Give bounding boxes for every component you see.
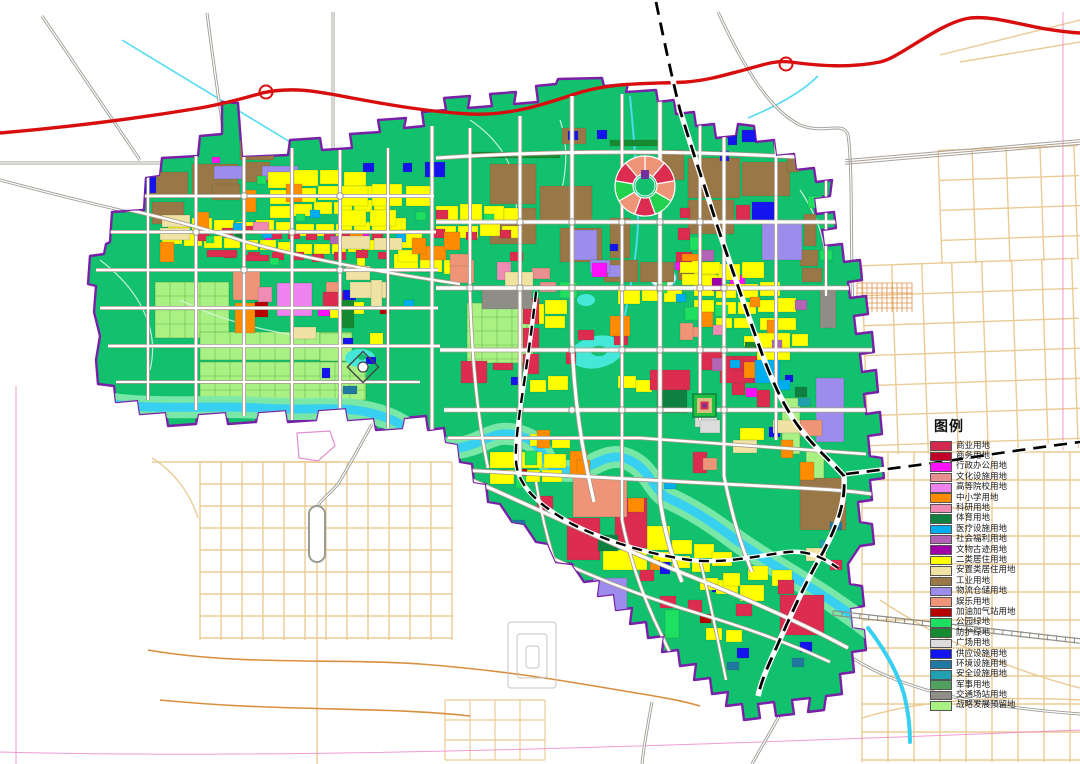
parcel-res	[740, 428, 764, 440]
legend-item-label: 交通场站用地	[956, 691, 1007, 700]
legend-swatch	[930, 556, 952, 566]
parcel-com	[757, 390, 770, 407]
legend-item-label: 科研用地	[956, 504, 990, 513]
parcel-sch	[800, 462, 814, 480]
legend-item: 文化设施用地	[930, 472, 1070, 482]
parcel-med	[676, 294, 686, 302]
legend-item: 供应设施用地	[930, 649, 1070, 659]
parcel-ind	[802, 268, 822, 282]
legend-item-label: 广场用地	[956, 639, 990, 648]
intersection-circle	[619, 219, 625, 225]
legend-item-label: 高等院校用地	[956, 483, 1007, 492]
legend-item-label: 社会福利用地	[956, 535, 1007, 544]
intersection-circle	[619, 407, 625, 413]
legend-item-label: 防护绿地	[956, 629, 990, 638]
parcel-cul	[532, 268, 550, 279]
intersection-circle	[657, 407, 663, 413]
parcel-res	[694, 544, 714, 558]
intersection-circle	[517, 285, 523, 291]
fan-center-monument	[641, 170, 649, 179]
heritage-site-core	[703, 404, 707, 408]
intersection-circle	[337, 193, 343, 199]
intersection-circle	[517, 219, 523, 225]
parcel-park	[665, 610, 679, 638]
legend-item: 防护绿地	[930, 628, 1070, 638]
legend-swatch	[930, 639, 952, 649]
parcel-com	[500, 230, 511, 238]
parcel-res	[270, 206, 290, 218]
parcel-sup	[322, 368, 330, 378]
intersection-circle	[569, 407, 575, 413]
parcel-res	[636, 380, 652, 392]
intersection-circle	[721, 285, 727, 291]
hatched-band-tick	[868, 614, 869, 620]
parcel-log	[214, 166, 242, 179]
parcel-com	[356, 250, 368, 258]
parcel-sch	[444, 232, 460, 250]
parcel-res	[545, 316, 565, 328]
legend-swatch	[930, 680, 952, 690]
intersection-circle	[657, 285, 663, 291]
parcel-med	[310, 210, 320, 218]
intersection-circle	[467, 285, 473, 291]
parcel-sup	[597, 130, 607, 139]
legend-swatch	[930, 628, 952, 638]
legend-swatch	[930, 587, 952, 597]
parcel-res	[530, 380, 546, 392]
parcel-sup	[425, 162, 445, 177]
parcel-tra	[820, 290, 836, 328]
intersection-circle	[241, 193, 247, 199]
parcel-res	[544, 454, 566, 468]
lake	[577, 294, 595, 306]
legend-swatch	[930, 525, 952, 535]
legend-item: 战略发展预留地	[930, 701, 1070, 711]
legend-swatch	[930, 483, 952, 493]
parcel-park	[525, 451, 537, 465]
parcel-ind	[540, 186, 592, 224]
parcel-sch	[750, 297, 760, 307]
parcel-com	[650, 370, 690, 390]
legend-item-label: 供应设施用地	[956, 650, 1007, 659]
parcel-sup	[363, 163, 374, 172]
parcel-res	[490, 452, 516, 468]
intersection-circle	[337, 267, 343, 273]
parcel-ind	[742, 162, 790, 196]
legend-item-label: 战略发展预留地	[956, 701, 1016, 710]
parcel-grnbuf	[342, 300, 354, 328]
parcel-ind	[804, 214, 816, 246]
parcel-com	[736, 205, 750, 220]
intersection-circle	[569, 219, 575, 225]
legend-item-label: 商务用地	[956, 452, 990, 461]
parcel-com	[680, 208, 690, 218]
hatched-band-tick	[922, 620, 923, 626]
legend-item: 物流仓储用地	[930, 586, 1070, 596]
parcel-sup	[403, 163, 412, 172]
intersection-circle	[569, 347, 575, 353]
parcel-com	[436, 210, 448, 219]
parcel-res	[723, 573, 740, 586]
parcel-sch	[412, 238, 426, 254]
parcel-ent	[573, 477, 627, 517]
legend-title: 图例	[934, 416, 1070, 436]
hatched-band-tick	[859, 613, 860, 619]
legend-item-label: 体育用地	[956, 514, 990, 523]
legend-swatch	[930, 618, 952, 628]
legend-item: 安全设施用地	[930, 670, 1070, 680]
parcel-res	[792, 334, 808, 346]
legend-swatch	[930, 566, 952, 576]
parcel-env	[343, 386, 357, 394]
intersection-circle	[241, 267, 247, 273]
legend-item: 行政办公用地	[930, 462, 1070, 472]
legend-swatch	[930, 670, 952, 680]
legend-item-label: 安置类居住用地	[956, 566, 1016, 575]
legend-swatch	[930, 577, 952, 587]
parcel-res	[370, 210, 396, 226]
parcel-com	[493, 363, 513, 370]
intersection-circle	[697, 219, 703, 225]
parcel-adm	[592, 263, 607, 277]
legend-item-label: 工业用地	[956, 577, 990, 586]
intersection-circle	[619, 285, 625, 291]
parcel-plaza	[700, 420, 720, 433]
legend-item: 安置类居住用地	[930, 566, 1070, 576]
parcel-res	[778, 298, 796, 312]
legend-item: 加油加气站用地	[930, 607, 1070, 617]
parcel-com	[736, 604, 752, 616]
parcel-spt	[795, 387, 807, 397]
legend-swatch	[930, 597, 952, 607]
parcel-res	[742, 262, 764, 278]
hatched-band-tick	[904, 618, 905, 624]
legend-item-label: 物流仓储用地	[956, 587, 1007, 596]
hatched-band-tick	[851, 612, 852, 618]
planning-map-canvas: 图例 商业用地商务用地行政办公用地文化设施用地高等院校用地中小学用地科研用地体育…	[0, 0, 1080, 764]
legend-item: 军事用地	[930, 680, 1070, 690]
parcel-park	[206, 236, 214, 243]
parcel-com	[243, 255, 269, 261]
parcel-res	[726, 630, 742, 642]
legend-swatch	[930, 441, 952, 451]
legend-swatch	[930, 473, 952, 483]
parcel-res	[758, 300, 776, 312]
legend-swatch	[930, 452, 952, 462]
parcel-park	[416, 212, 426, 220]
parcel-med	[730, 360, 740, 368]
legend-item-label: 文化设施用地	[956, 473, 1007, 482]
legend-item-label: 环境设施用地	[956, 660, 1007, 669]
legend-item-label: 公园绿地	[956, 618, 990, 627]
legend-item-label: 商业用地	[956, 442, 990, 451]
parcel-res	[672, 540, 692, 554]
parcel-adm	[746, 388, 757, 397]
interchange-circle	[358, 362, 368, 372]
parcel-uni	[277, 283, 312, 316]
legend-swatch	[930, 701, 952, 711]
parcel-park	[257, 176, 266, 184]
parcel-res	[314, 244, 330, 254]
intersection-circle	[721, 407, 727, 413]
legend-item: 商业用地	[930, 441, 1070, 451]
legend-item: 高等院校用地	[930, 483, 1070, 493]
parcel-res	[480, 224, 500, 236]
parcel-com	[678, 228, 690, 240]
parcel-ind	[800, 250, 818, 266]
intersection-circle	[193, 229, 199, 235]
intersection-circle	[569, 285, 575, 291]
intersection-circle	[697, 347, 703, 353]
legend-item: 文物古迹用地	[930, 545, 1070, 555]
parcel-res2	[371, 280, 382, 307]
hatched-band-tick	[913, 619, 914, 625]
parcel-grnbuf	[610, 140, 660, 146]
parcel-sch	[160, 242, 174, 262]
parcel-com	[778, 580, 794, 594]
intersection-circle	[657, 347, 663, 353]
legend-item: 工业用地	[930, 576, 1070, 586]
parcel-park	[270, 258, 279, 265]
legend-swatch	[930, 535, 952, 545]
parcel-tra	[482, 289, 532, 309]
legend-item: 体育用地	[930, 514, 1070, 524]
legend-item-label: 二类居住用地	[956, 556, 1007, 565]
parcel-res	[294, 170, 318, 186]
parcel-log	[762, 220, 802, 260]
intersection-circle	[721, 347, 727, 353]
parcel-sup	[610, 244, 618, 251]
legend-item: 广场用地	[930, 638, 1070, 648]
parcel-sci	[258, 287, 272, 302]
legend-swatch	[930, 660, 952, 670]
legend-swatch	[930, 545, 952, 555]
parcel-saf	[798, 398, 810, 406]
legend-item-label: 中小学用地	[956, 494, 999, 503]
legend-item-label: 军事用地	[956, 681, 990, 690]
legend: 图例 商业用地商务用地行政办公用地文化设施用地高等院校用地中小学用地科研用地体育…	[930, 416, 1070, 711]
legend-swatch	[930, 608, 952, 618]
hatched-band-tick	[886, 616, 887, 622]
legend-item-label: 加油加气站用地	[956, 608, 1016, 617]
parcel-ind	[640, 262, 674, 282]
parcel-park	[296, 214, 305, 221]
parcel-res	[778, 318, 796, 330]
parcel-com	[207, 250, 237, 257]
legend-swatch	[930, 514, 952, 524]
legend-swatch	[930, 649, 952, 659]
legend-item-label: 行政办公用地	[956, 462, 1007, 471]
parcel-com	[640, 570, 654, 581]
parcel-park	[685, 307, 698, 320]
land-use-map	[0, 0, 1080, 764]
legend-item: 娱乐用地	[930, 597, 1070, 607]
parcel-res	[340, 210, 366, 226]
legend-swatch	[930, 462, 952, 472]
parcel-env	[792, 658, 804, 667]
parcel-res	[344, 172, 366, 186]
parcel-sch	[628, 498, 644, 512]
parcel-log	[572, 230, 597, 260]
parcel-res	[682, 274, 700, 285]
hatched-band-tick	[842, 611, 843, 617]
legend-swatch	[930, 493, 952, 503]
legend-item: 中小学用地	[930, 493, 1070, 503]
legend-item: 公园绿地	[930, 618, 1070, 628]
legend-item: 社会福利用地	[930, 535, 1070, 545]
parcel-env	[727, 662, 739, 670]
parcel-res	[702, 262, 720, 274]
legend-item: 医疗设施用地	[930, 524, 1070, 534]
hatched-band-tick	[895, 617, 896, 623]
legend-item: 科研用地	[930, 503, 1070, 513]
parcel-wel	[700, 250, 714, 261]
parcel-ind	[490, 164, 536, 204]
legend-item-label: 文物古迹用地	[956, 546, 1007, 555]
parcel-ent	[703, 458, 717, 470]
parcel-ent	[233, 270, 260, 300]
parcel-adm	[212, 157, 220, 163]
parcel-ent	[680, 323, 693, 340]
legend-swatch	[930, 691, 952, 701]
parcel-com	[578, 330, 594, 340]
intersection-circle	[289, 229, 295, 235]
parcel-res2	[340, 236, 370, 249]
hatched-band-tick	[877, 615, 878, 621]
parcel-wel	[795, 300, 807, 310]
intersection-circle	[697, 285, 703, 291]
legend-item-label: 娱乐用地	[956, 598, 990, 607]
hatched-band-tick	[1074, 637, 1075, 643]
parcel-sup	[737, 648, 749, 658]
parcel-res	[548, 376, 568, 390]
intersection-circle	[619, 347, 625, 353]
legend-item-label: 医疗设施用地	[956, 525, 1007, 534]
parcel-com	[732, 383, 745, 395]
legend-items: 商业用地商务用地行政办公用地文化设施用地高等院校用地中小学用地科研用地体育用地医…	[930, 441, 1070, 711]
legend-swatch	[930, 504, 952, 514]
legend-item-label: 安全设施用地	[956, 670, 1007, 679]
intersection-circle	[657, 219, 663, 225]
oval-roundabout	[309, 506, 325, 562]
parcel-ent	[450, 254, 470, 266]
parcel-res	[545, 300, 567, 314]
hatched-band-tick	[833, 610, 834, 616]
